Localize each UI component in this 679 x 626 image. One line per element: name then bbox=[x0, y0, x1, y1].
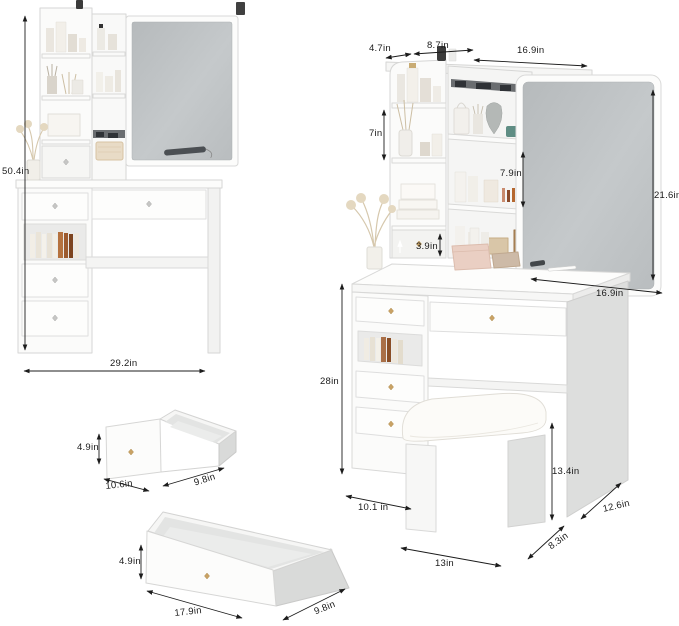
diagram-scene bbox=[0, 0, 679, 626]
dim-open-shelf-height: 7in bbox=[369, 129, 382, 139]
dim-middle-shelf-height: 7.9in bbox=[500, 169, 522, 179]
dim-hutch-drawer-height: 3.9in bbox=[416, 242, 438, 252]
left-desk bbox=[16, 180, 222, 353]
dim-top-side-depth: 4.7in bbox=[369, 44, 391, 54]
dim-mirror-height: 21.6in bbox=[654, 191, 679, 201]
dim-overall-width: 29.2in bbox=[110, 359, 137, 369]
decor-bottle-icon bbox=[236, 2, 245, 15]
dim-desktop-width: 16.9in bbox=[596, 289, 623, 299]
left-mirror bbox=[126, 16, 238, 166]
dim-small-drawer-height: 4.9in bbox=[77, 443, 99, 453]
dim-stool-height: 13.4in bbox=[552, 467, 579, 477]
mirror-slide-rail bbox=[93, 130, 125, 138]
figure-large-drawer bbox=[146, 512, 349, 606]
dim-base-depth: 10.1 in bbox=[358, 503, 388, 513]
dim-overall-height: 50.4in bbox=[2, 167, 29, 177]
stool bbox=[402, 393, 546, 532]
dim-desk-height: 28in bbox=[320, 377, 339, 387]
cubby-books bbox=[30, 232, 79, 258]
dim-hutch-top-width: 8.7in bbox=[427, 41, 449, 51]
figure-small-drawer bbox=[106, 410, 236, 479]
decor-bottle-icon bbox=[76, 0, 83, 9]
arrow-top-side-depth bbox=[386, 54, 411, 58]
figure-left-vanity bbox=[16, 0, 245, 353]
product-dimension-diagram: 50.4in 29.2in 4.7in 8.7in 16.9in 7in 7.9… bbox=[0, 0, 679, 626]
right-desk bbox=[352, 264, 630, 517]
arrow-mirror-slide-width bbox=[474, 60, 587, 66]
dim-mirror-slide-width: 16.9in bbox=[517, 46, 544, 56]
right-hutch-tower bbox=[390, 60, 446, 258]
left-hutch-tower bbox=[40, 8, 92, 180]
dim-large-drawer-height: 4.9in bbox=[119, 557, 141, 567]
dim-stool-width: 13in bbox=[435, 559, 454, 569]
left-hutch-middle-column bbox=[92, 14, 126, 180]
